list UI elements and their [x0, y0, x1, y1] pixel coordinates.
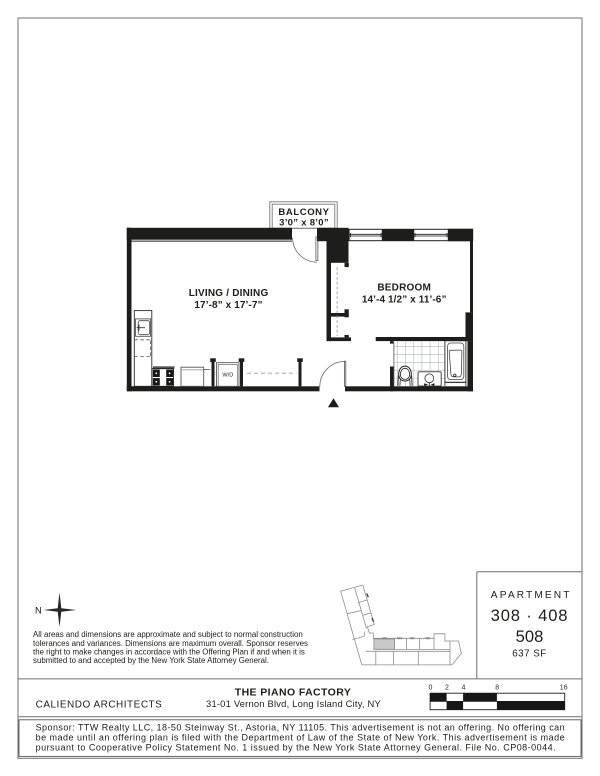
- svg-text:14’-4 1/2” x 11’-6”: 14’-4 1/2” x 11’-6”: [362, 294, 447, 305]
- svg-text:submitted to and accepted by t: submitted to and accepted by the New Yor…: [33, 656, 269, 665]
- svg-text:637 SF: 637 SF: [512, 649, 547, 660]
- svg-text:31-01 Vernon Blvd, Long Island: 31-01 Vernon Blvd, Long Island City, NY: [206, 698, 381, 709]
- svg-text:508: 508: [516, 627, 544, 646]
- svg-text:2: 2: [445, 685, 449, 692]
- svg-text:17’-8” x 17’-7”: 17’-8” x 17’-7”: [194, 300, 262, 311]
- svg-text:BALCONY: BALCONY: [278, 207, 329, 218]
- svg-text:W/D: W/D: [222, 372, 233, 378]
- svg-text:308 · 408: 308 · 408: [491, 606, 569, 625]
- svg-text:3’0” x 8’0”: 3’0” x 8’0”: [279, 218, 329, 229]
- svg-text:0: 0: [429, 685, 433, 692]
- svg-text:16: 16: [560, 685, 568, 692]
- svg-text:CALIENDO ARCHITECTS: CALIENDO ARCHITECTS: [36, 700, 163, 711]
- svg-text:Sponsor: TTW Realty LLC, 18-50: Sponsor: TTW Realty LLC, 18-50 Steinway …: [36, 722, 565, 732]
- svg-text:APARTMENT: APARTMENT: [491, 590, 572, 601]
- svg-text:4: 4: [461, 685, 465, 692]
- svg-text:BEDROOM: BEDROOM: [377, 283, 431, 294]
- svg-text:be made until an offering plan: be made until an offering plan is filed …: [36, 732, 565, 742]
- svg-text:LIVING / DINING: LIVING / DINING: [189, 288, 269, 299]
- svg-text:N: N: [35, 604, 42, 615]
- svg-text:8: 8: [495, 685, 499, 692]
- svg-text:pursuant to Cooperative Policy: pursuant to Cooperative Policy Statement…: [36, 742, 556, 752]
